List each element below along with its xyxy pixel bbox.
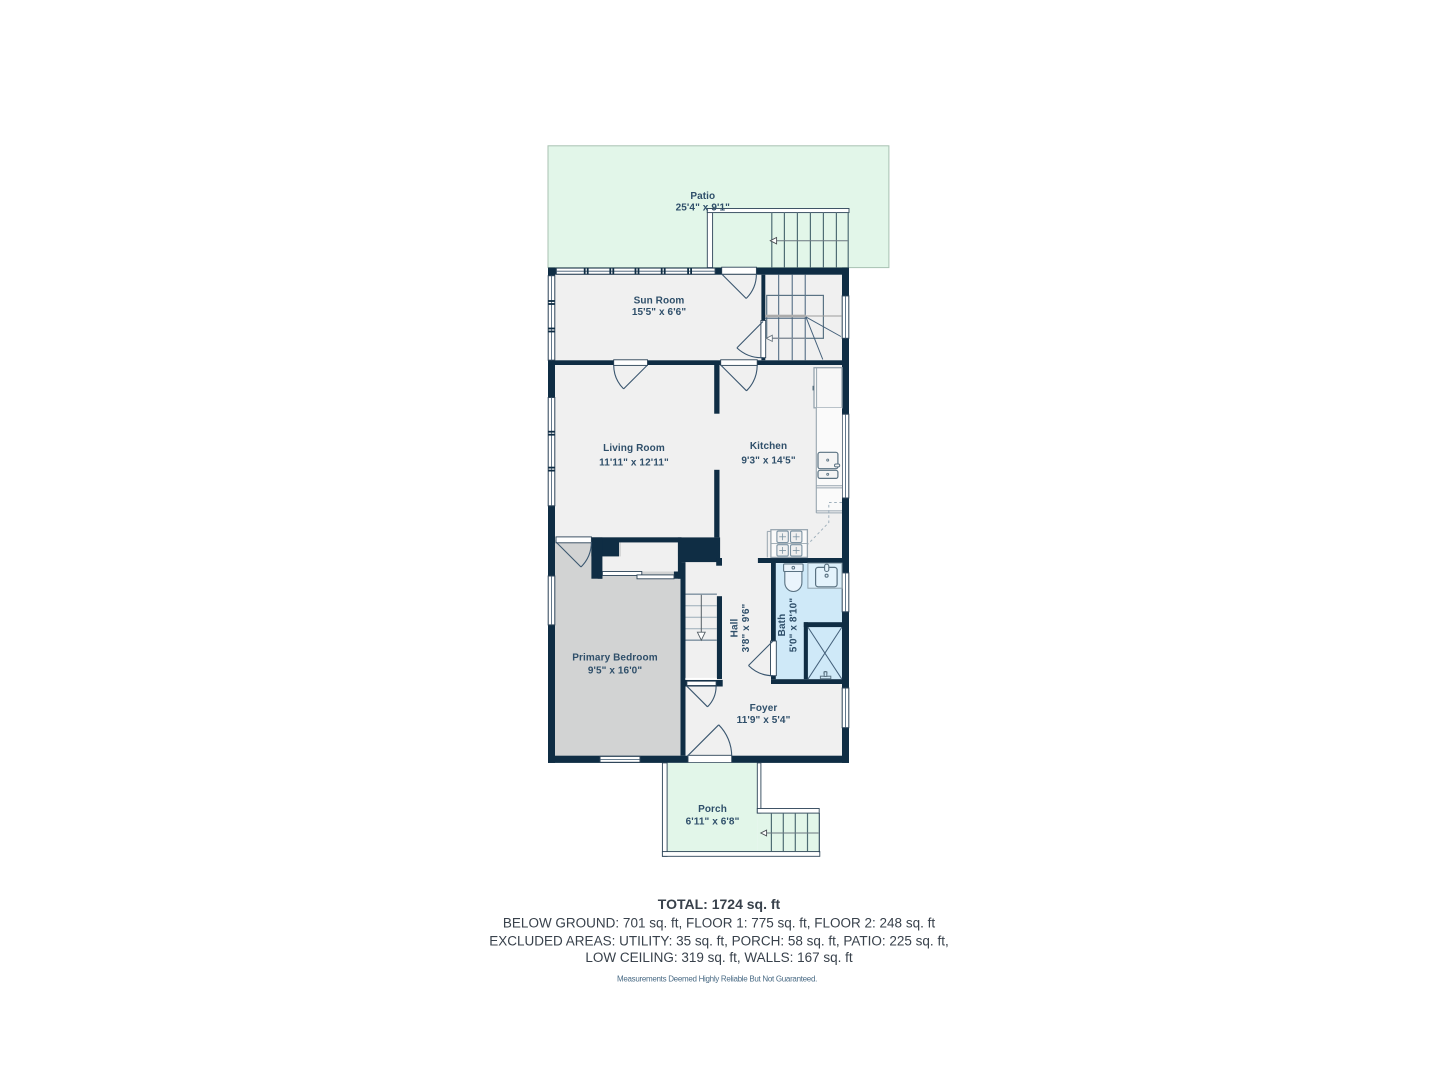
svg-text:9'3" x 14'5": 9'3" x 14'5" — [741, 455, 796, 466]
svg-text:Hall: Hall — [730, 619, 741, 638]
svg-text:LOW CEILING: 319 sq. ft, WALLS: LOW CEILING: 319 sq. ft, WALLS: 167 sq. … — [585, 950, 853, 965]
svg-text:Porch: Porch — [698, 804, 727, 815]
svg-text:Patio: Patio — [690, 191, 715, 202]
svg-text:15'5" x 6'6": 15'5" x 6'6" — [632, 307, 687, 318]
svg-text:Foyer: Foyer — [750, 703, 778, 714]
svg-text:Measurements Deemed Highly Rel: Measurements Deemed Highly Reliable But … — [617, 975, 817, 984]
svg-text:TOTAL: 1724 sq. ft: TOTAL: 1724 sq. ft — [658, 896, 781, 912]
svg-text:11'9" x 5'4": 11'9" x 5'4" — [737, 715, 791, 726]
svg-text:5'0" x 8'10": 5'0" x 8'10" — [789, 598, 800, 653]
svg-text:Primary Bedroom: Primary Bedroom — [572, 653, 657, 664]
svg-text:25'4" x 9'1": 25'4" x 9'1" — [676, 202, 731, 213]
svg-text:6'11" x 6'8": 6'11" x 6'8" — [686, 817, 740, 828]
svg-text:3'8" x 9'6": 3'8" x 9'6" — [741, 603, 752, 652]
svg-text:9'5" x 16'0": 9'5" x 16'0" — [588, 665, 643, 676]
svg-text:11'11" x 12'11": 11'11" x 12'11" — [599, 458, 669, 469]
svg-text:BELOW GROUND: 701 sq. ft, FLOO: BELOW GROUND: 701 sq. ft, FLOOR 1: 775 s… — [503, 916, 935, 931]
svg-text:Bath: Bath — [777, 614, 788, 637]
svg-text:Sun Room: Sun Room — [634, 295, 685, 306]
svg-text:EXCLUDED AREAS: UTILITY: 35 sq: EXCLUDED AREAS: UTILITY: 35 sq. ft, PORC… — [489, 934, 948, 949]
svg-text:Kitchen: Kitchen — [750, 441, 787, 452]
svg-text:Living Room: Living Room — [603, 443, 665, 454]
